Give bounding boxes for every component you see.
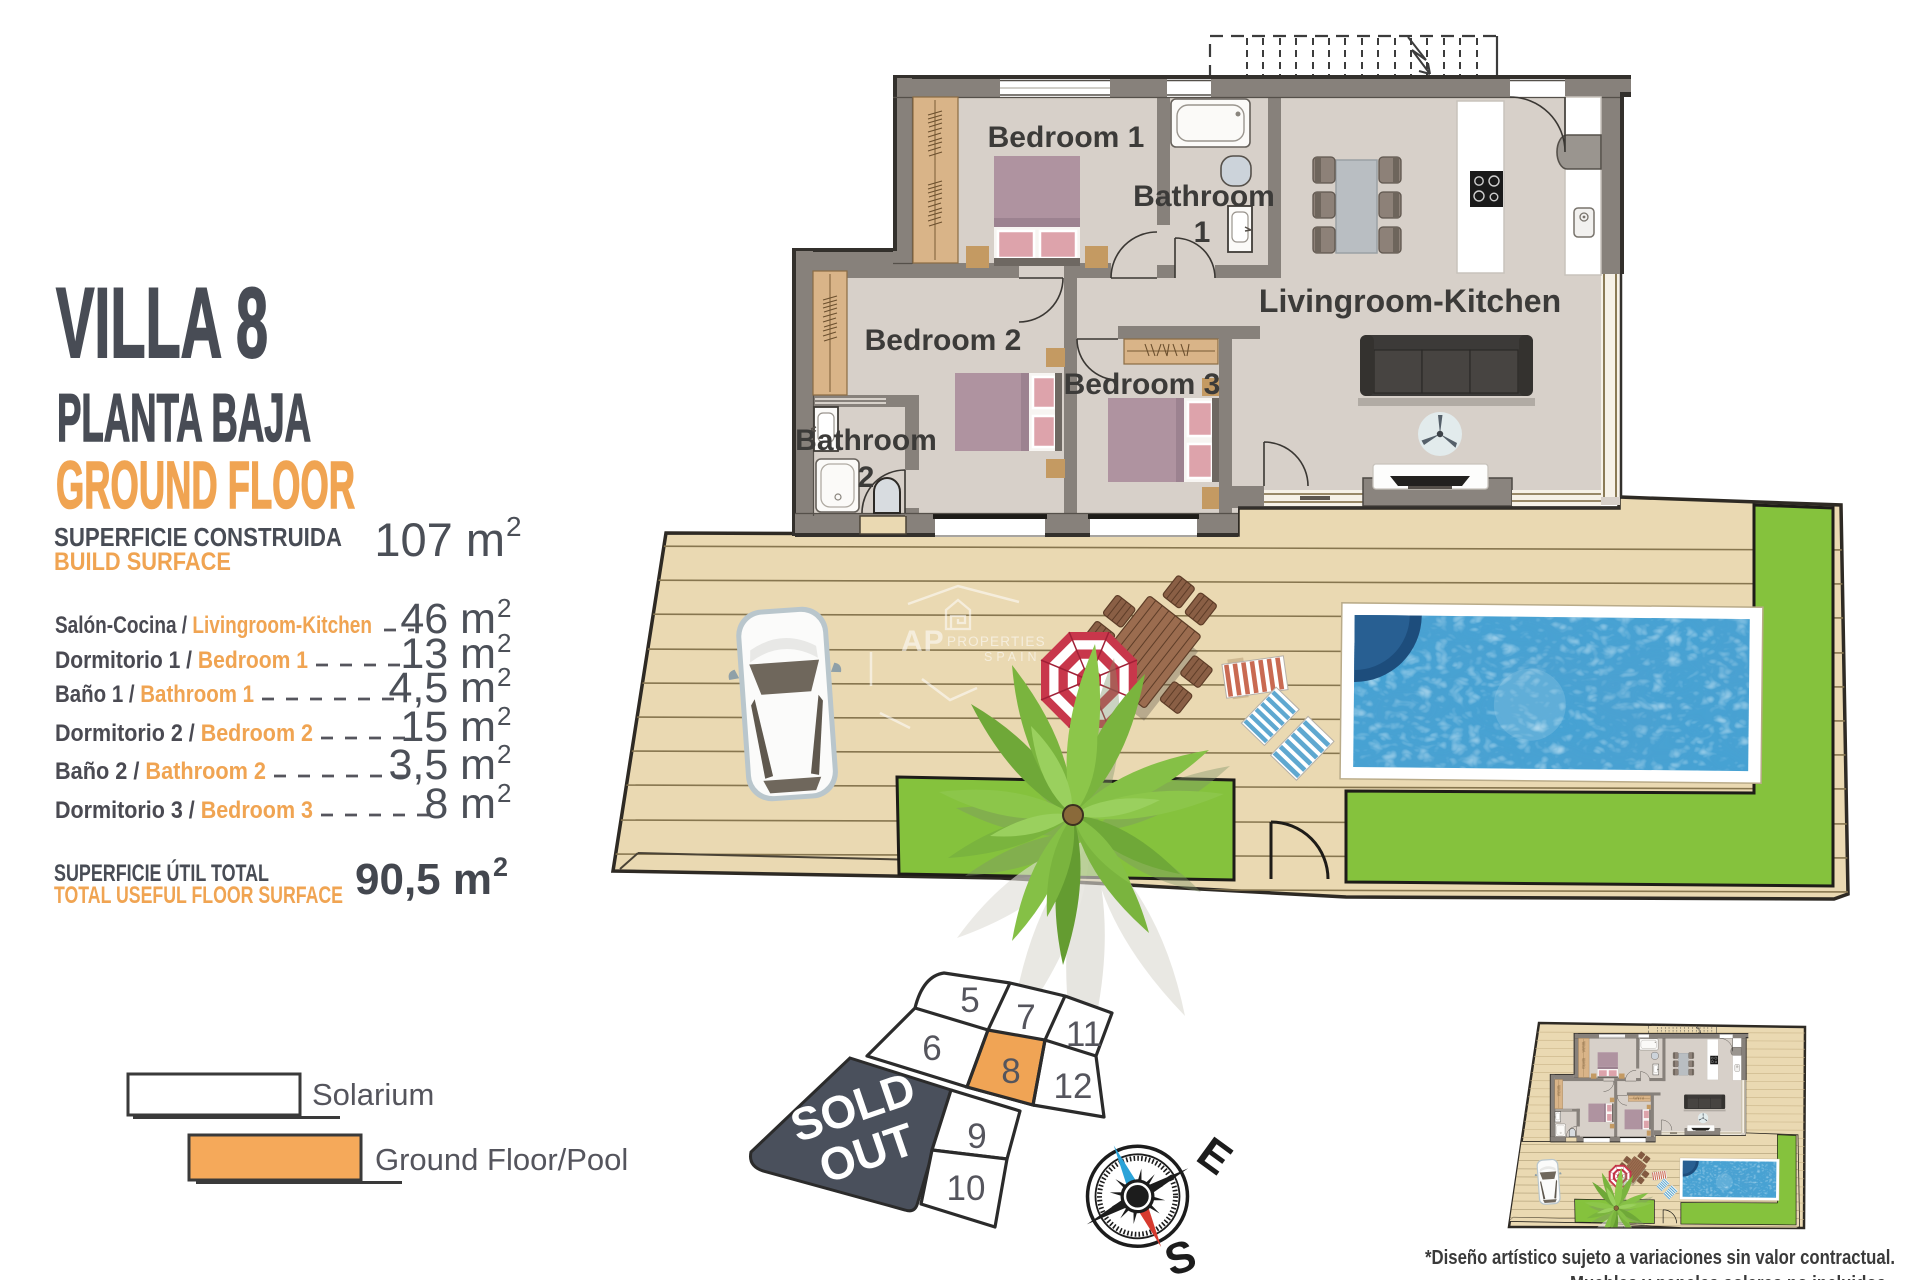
svg-text:2: 2 (497, 778, 511, 808)
svg-text:VILLA 8: VILLA 8 (56, 267, 268, 378)
svg-text:Baño 1 / Bathroom 1: Baño 1 / Bathroom 1 (55, 681, 254, 708)
svg-text:2: 2 (497, 662, 511, 692)
svg-text:5: 5 (960, 981, 979, 1020)
svg-text:E: E (1188, 1128, 1241, 1185)
svg-text:PLANTA BAJA: PLANTA BAJA (57, 380, 311, 456)
svg-text:2: 2 (858, 461, 875, 494)
svg-text:2: 2 (497, 593, 511, 623)
svg-text:Dormitorio 3 / Bedroom 3: Dormitorio 3 / Bedroom 3 (55, 797, 313, 824)
svg-text:TOTAL USEFUL FLOOR SURFACE: TOTAL USEFUL FLOOR SURFACE (54, 882, 343, 909)
svg-text:2: 2 (497, 739, 511, 769)
svg-text:1: 1 (1194, 216, 1211, 249)
svg-text:Muebles y paneles solares no i: Muebles y paneles solares no incluidos (1570, 1272, 1886, 1280)
svg-text:12: 12 (1054, 1067, 1093, 1106)
svg-text:S: S (1159, 1230, 1202, 1280)
svg-text:Ground Floor/Pool: Ground Floor/Pool (375, 1142, 628, 1177)
svg-text:107 m: 107 m (374, 513, 505, 566)
svg-text:90,5 m: 90,5 m (355, 855, 492, 904)
svg-text:Dormitorio 1 / Bedroom 1: Dormitorio 1 / Bedroom 1 (55, 647, 308, 674)
svg-text:PROPERTIES: PROPERTIES (947, 634, 1046, 649)
svg-text:8 m: 8 m (424, 780, 496, 828)
svg-text:Salón-Cocina / Livingroom-Kitc: Salón-Cocina / Livingroom-Kitchen (55, 612, 372, 639)
svg-text:2: 2 (497, 628, 511, 658)
svg-text:10: 10 (947, 1169, 986, 1208)
svg-text:9: 9 (967, 1117, 986, 1156)
svg-text:GROUND FLOOR: GROUND FLOOR (56, 448, 355, 523)
svg-text:Baño 2 / Bathroom 2: Baño 2 / Bathroom 2 (55, 758, 266, 785)
svg-text:Solarium: Solarium (312, 1077, 434, 1112)
svg-text:2: 2 (497, 701, 511, 731)
svg-text:2: 2 (506, 511, 522, 542)
svg-text:7: 7 (1016, 998, 1035, 1037)
svg-text:Bedroom 2: Bedroom 2 (865, 324, 1022, 357)
svg-text:2: 2 (493, 852, 508, 882)
svg-text:Bathroom: Bathroom (1133, 180, 1275, 213)
svg-text:*Diseño artístico sujeto a var: *Diseño artístico sujeto a variaciones s… (1425, 1246, 1895, 1269)
svg-text:8: 8 (1001, 1052, 1020, 1091)
svg-text:Livingroom-Kitchen: Livingroom-Kitchen (1259, 283, 1561, 319)
svg-text:11: 11 (1066, 1015, 1102, 1054)
svg-text:Bedroom 3: Bedroom 3 (1064, 368, 1221, 401)
svg-text:6: 6 (922, 1029, 941, 1068)
svg-text:AP: AP (901, 625, 945, 658)
svg-text:SPAIN: SPAIN (984, 650, 1041, 664)
svg-text:Dormitorio 2 / Bedroom 2: Dormitorio 2 / Bedroom 2 (55, 720, 313, 747)
svg-text:Bedroom 1: Bedroom 1 (988, 121, 1145, 154)
svg-text:BUILD SURFACE: BUILD SURFACE (54, 548, 231, 576)
svg-text:Bathroom: Bathroom (795, 424, 937, 457)
